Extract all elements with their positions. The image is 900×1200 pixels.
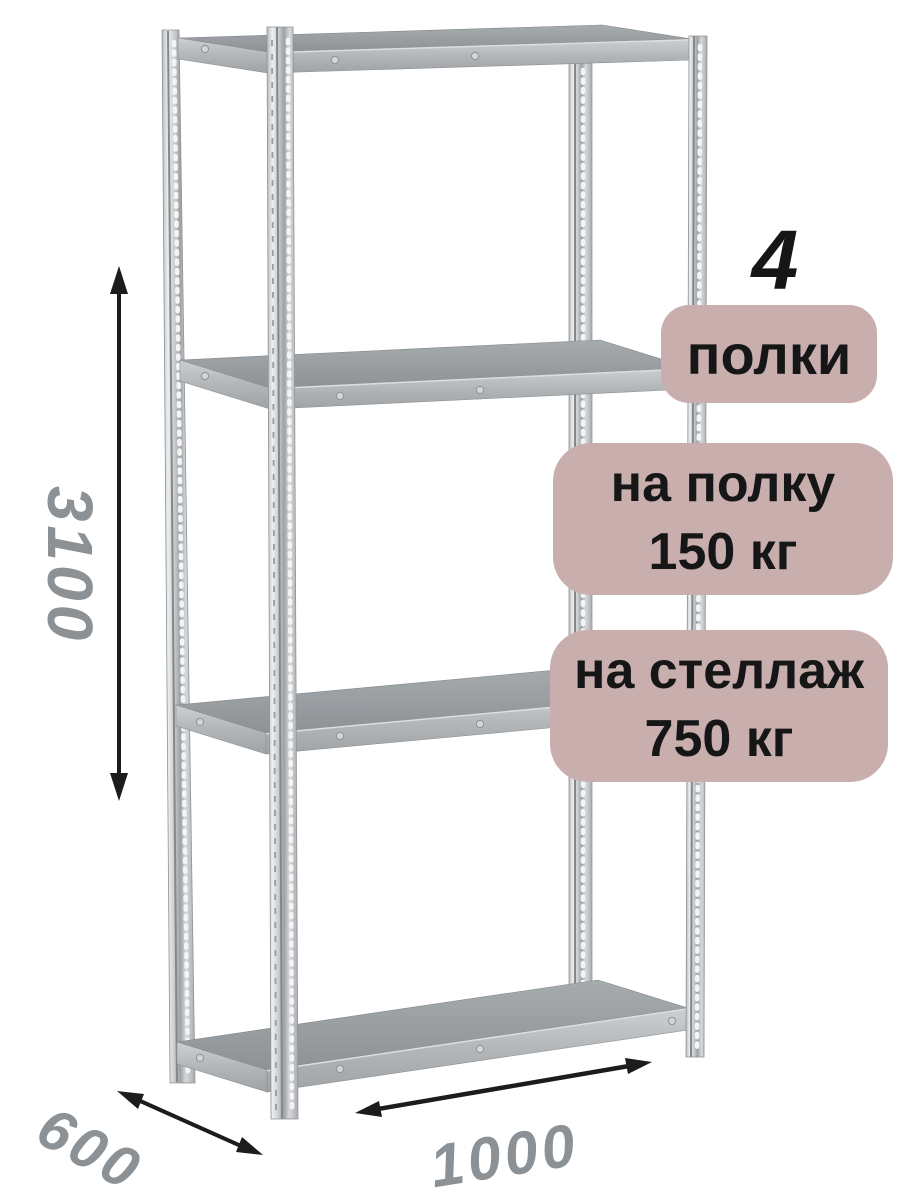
rack-post-front-left <box>267 27 298 1119</box>
bolt <box>336 1065 343 1072</box>
bolt <box>668 1017 675 1024</box>
rack-shelf-top <box>178 25 692 73</box>
rack-shelf-2 <box>180 340 690 409</box>
bolt <box>336 392 343 399</box>
arrow-head-down <box>110 773 128 801</box>
rack-post-back-left <box>162 30 195 1083</box>
post-body <box>162 30 195 1083</box>
bolt <box>331 56 338 63</box>
badge-shelf-load: на полку 150 кг <box>553 443 893 595</box>
badge-rack-load-line2: 750 кг <box>645 706 794 774</box>
rack-shelf-bottom <box>177 980 688 1092</box>
height-dimension-arrow <box>110 266 128 801</box>
badge-shelf-load-line1: на полку <box>611 451 836 519</box>
arrow-head-left <box>355 1101 382 1117</box>
badge-rack-load: на стеллаж 750 кг <box>550 630 888 782</box>
shelf-count-number: 4 <box>723 212 827 312</box>
badge-shelf-count-label: полки <box>687 322 852 387</box>
bolt <box>471 52 478 59</box>
arrow-head-downright <box>236 1137 263 1155</box>
arrow-line <box>378 1066 629 1109</box>
height-dimension-label: 3100 <box>47 415 107 715</box>
arrow-head-upleft <box>117 1091 144 1109</box>
arrow-line <box>138 1100 241 1146</box>
badge-shelf-count: полки <box>661 305 877 403</box>
arrow-head-up <box>110 266 128 294</box>
product-illustration-shelving-rack: 3100 600 1000 4 полки на полку 150 кг на… <box>0 0 900 1200</box>
bolt <box>201 372 208 379</box>
bolt <box>196 1054 203 1061</box>
arrow-head-right <box>625 1058 652 1074</box>
bolt <box>476 386 483 393</box>
bolt <box>336 732 343 739</box>
bolt <box>476 720 483 727</box>
bolt <box>196 718 203 725</box>
badge-shelf-load-line2: 150 кг <box>649 519 798 587</box>
bolt <box>201 45 208 52</box>
bolt <box>476 1045 483 1052</box>
rack-illustration <box>0 0 900 1200</box>
badge-rack-load-line1: на стеллаж <box>574 638 864 706</box>
